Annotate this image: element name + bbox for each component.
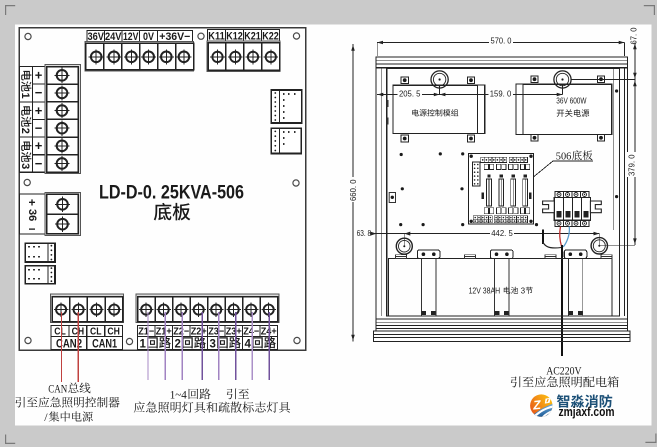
- svg-text:−: −: [35, 121, 43, 136]
- svg-text:zmjaxf.com: zmjaxf.com: [559, 404, 615, 419]
- svg-text:2: 2: [19, 128, 31, 134]
- svg-text:36V 600W: 36V 600W: [556, 96, 587, 105]
- svg-text:4: 4: [245, 338, 252, 350]
- svg-text:3: 3: [210, 338, 216, 350]
- svg-text:CAN1: CAN1: [92, 336, 117, 350]
- svg-text:+: +: [35, 103, 43, 118]
- svg-text:63. 8: 63. 8: [357, 229, 372, 238]
- svg-text:−: −: [28, 222, 35, 236]
- svg-text:+: +: [28, 196, 35, 210]
- svg-text:AC220V: AC220V: [546, 363, 582, 377]
- svg-text:442. 5: 442. 5: [491, 229, 513, 238]
- svg-text:379. 0: 379. 0: [628, 154, 637, 176]
- svg-text:36: 36: [26, 209, 38, 221]
- svg-text:1: 1: [19, 93, 31, 99]
- svg-text:+: +: [35, 138, 43, 153]
- svg-text:−: −: [35, 156, 43, 171]
- svg-text:2: 2: [175, 338, 181, 350]
- svg-text:CAN: CAN: [48, 381, 67, 395]
- svg-text:67. 0: 67. 0: [630, 27, 639, 45]
- svg-text:+: +: [35, 68, 43, 83]
- svg-text:−: −: [35, 85, 43, 100]
- svg-text:3: 3: [521, 286, 525, 295]
- svg-text:12V 38AH: 12V 38AH: [469, 286, 501, 295]
- svg-text:1: 1: [140, 338, 147, 350]
- svg-text:1~4: 1~4: [170, 387, 187, 401]
- svg-text:205. 5: 205. 5: [399, 89, 421, 98]
- svg-text:570. 0: 570. 0: [491, 36, 513, 45]
- svg-text:LD-D-0. 25KVA-506: LD-D-0. 25KVA-506: [99, 181, 244, 203]
- svg-text:660. 0: 660. 0: [349, 179, 358, 201]
- svg-text:3: 3: [19, 163, 31, 169]
- svg-text:159. 0: 159. 0: [490, 89, 512, 98]
